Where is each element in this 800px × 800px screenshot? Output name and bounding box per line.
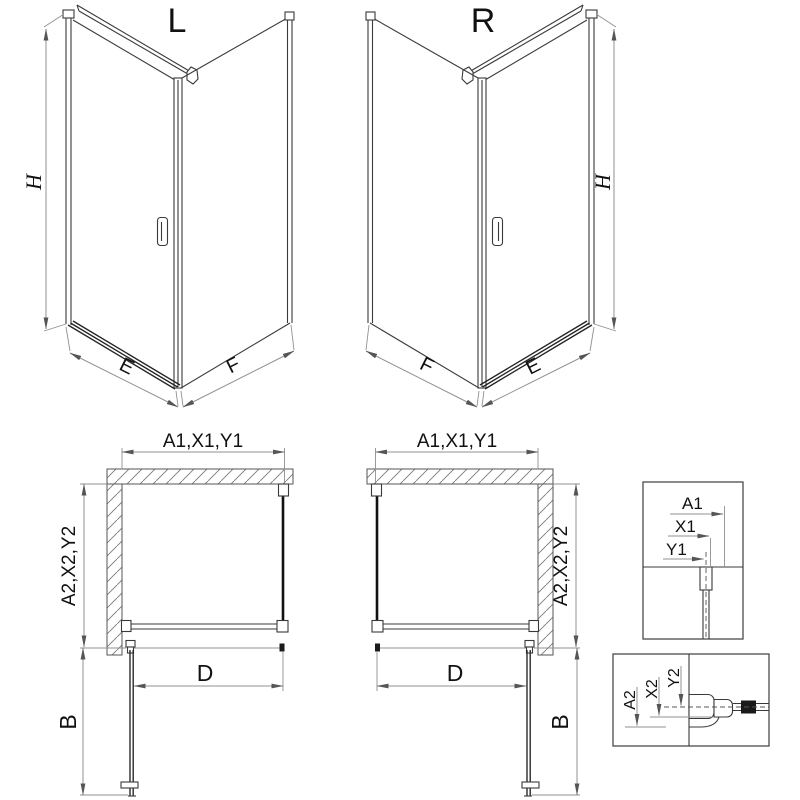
detail-top-center-label: Y1 bbox=[666, 540, 687, 559]
iso-enclosure-geometry bbox=[44, 5, 294, 407]
plan-right-top-dim-label: A1,X1,Y1 bbox=[417, 431, 497, 452]
corner-post bbox=[174, 78, 182, 388]
fixed-glass-panel bbox=[277, 484, 289, 632]
plan-right-side-dim-label: A2,X2,Y2 bbox=[551, 526, 572, 606]
dimension-height bbox=[44, 14, 66, 331]
technical-drawing-page: L H E F R H E F bbox=[0, 0, 800, 800]
plan-left-swing-dim-label: B bbox=[55, 714, 81, 729]
plan-left-side-dim-label: A2,X2,Y2 bbox=[59, 526, 80, 606]
plan-right-door-dim-label: D bbox=[447, 660, 464, 686]
dim-label-side-right: F bbox=[416, 353, 437, 378]
profile-channel bbox=[714, 700, 733, 718]
bar-wall-bracket bbox=[529, 621, 539, 632]
plan-right-swing-dim-label: B bbox=[547, 714, 573, 729]
door-strike-block bbox=[375, 644, 380, 652]
detail-bottom-center-label: Y2 bbox=[666, 668, 683, 688]
bar-wall-bracket bbox=[122, 621, 132, 632]
plan-view-right: A1,X1,Y1 A2,X2,Y2 D B bbox=[367, 431, 580, 796]
profile-bracket bbox=[689, 695, 714, 719]
support-bar bbox=[122, 621, 278, 632]
detail-wall-profile-bottom: A2 X2 Y2 bbox=[613, 654, 769, 746]
iso-enclosure-geometry-mirrored bbox=[366, 5, 616, 407]
support-bar bbox=[383, 621, 539, 632]
plan-view-left: A1,X1,Y1 A2,X2,Y2 D B bbox=[55, 431, 293, 796]
dim-label-height-right: H bbox=[590, 173, 615, 191]
door-handle bbox=[158, 218, 168, 246]
door-panel bbox=[73, 20, 175, 80]
side-panel bbox=[181, 12, 294, 388]
door-open-panel bbox=[121, 650, 138, 796]
variant-left-title: L bbox=[168, 2, 187, 40]
plan-left-door-dim-label: D bbox=[197, 660, 214, 686]
wall-top bbox=[107, 469, 293, 484]
detail-bottom-mid-label: X2 bbox=[644, 679, 661, 699]
wall-profile-door-side bbox=[63, 10, 74, 325]
door-handle-plan bbox=[121, 782, 138, 788]
iso-left-labels: L H E F bbox=[21, 2, 244, 379]
door-open-panel bbox=[522, 650, 539, 796]
door-handle-plan bbox=[522, 782, 539, 788]
wall-top bbox=[367, 469, 553, 484]
detail-top-mid-label: X1 bbox=[675, 517, 696, 536]
glass-clamp-top bbox=[372, 484, 382, 496]
plan-left-top-dim-label: A1,X1,Y1 bbox=[163, 431, 243, 452]
dimension-door-swing bbox=[80, 648, 128, 795]
dim-label-height-left: H bbox=[21, 173, 46, 191]
detail-bottom-outer-label: A2 bbox=[622, 690, 639, 710]
fixed-glass-panel bbox=[372, 484, 384, 632]
technical-drawing-canvas: L H E F R H E F bbox=[0, 0, 800, 800]
glass-clamp-bottom bbox=[372, 621, 383, 633]
wall-side bbox=[107, 484, 122, 655]
dim-label-front-left: E bbox=[116, 354, 138, 380]
variant-right-title: R bbox=[471, 2, 496, 40]
door-strike-block bbox=[280, 644, 285, 652]
dim-label-front-right: E bbox=[522, 354, 544, 380]
glass-clamp-bottom bbox=[277, 621, 288, 633]
detail-wall-profile-top: A1 X1 Y1 bbox=[643, 482, 743, 639]
detail-top-outer-label: A1 bbox=[682, 494, 703, 513]
glass-clamp-top bbox=[279, 484, 289, 496]
dim-label-side-left: F bbox=[223, 353, 244, 378]
